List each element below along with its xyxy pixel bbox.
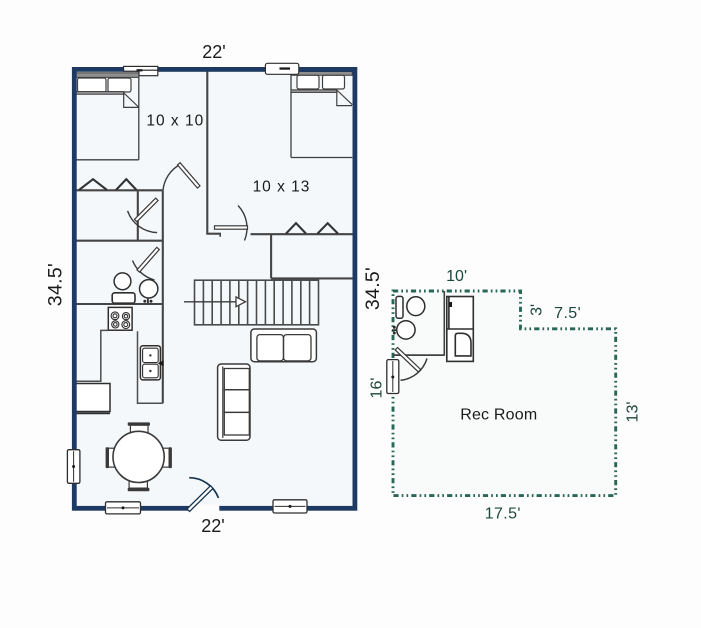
svg-text:17.5': 17.5' <box>485 506 521 523</box>
svg-text:10 x 10: 10 x 10 <box>146 112 204 129</box>
svg-text:Rec Room: Rec Room <box>460 407 537 424</box>
svg-text:7.5': 7.5' <box>554 305 581 322</box>
svg-text:16': 16' <box>368 378 385 399</box>
svg-text:10 x 13: 10 x 13 <box>253 178 311 195</box>
svg-text:22': 22' <box>201 516 224 536</box>
svg-text:10': 10' <box>446 268 467 285</box>
svg-text:34.5': 34.5' <box>362 267 384 310</box>
svg-text:13': 13' <box>625 402 642 423</box>
svg-text:3': 3' <box>529 304 546 316</box>
svg-text:22': 22' <box>202 42 225 62</box>
svg-text:34.5': 34.5' <box>45 263 67 306</box>
